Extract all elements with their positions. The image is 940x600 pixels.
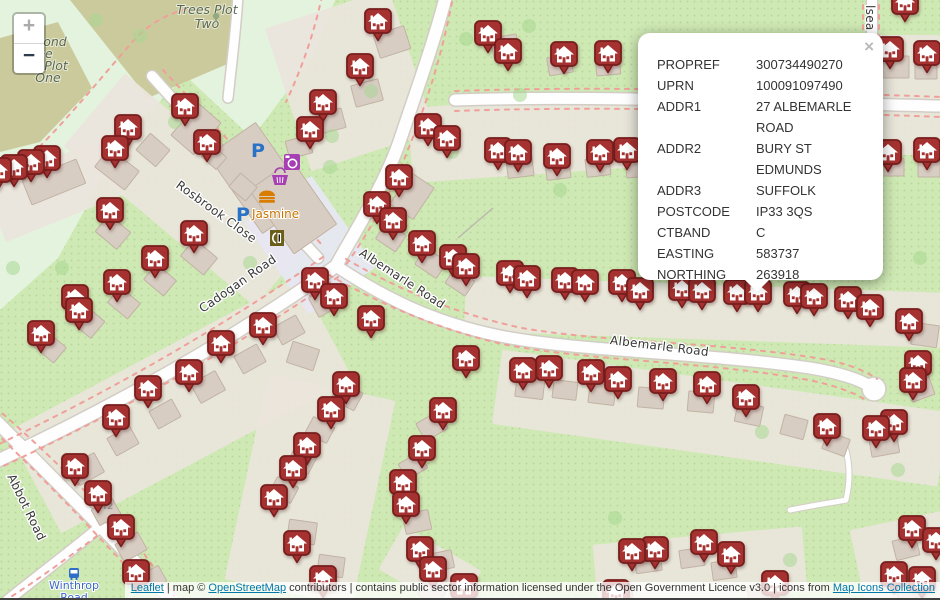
tree (89, 13, 103, 27)
popup-field-value: IP33 3QS (756, 201, 868, 222)
tree (522, 19, 536, 33)
popup-field-label: UPRN (657, 75, 756, 96)
tree (133, 29, 147, 43)
tree (364, 84, 378, 98)
popup-field-label: NORTHING (657, 264, 756, 285)
parking-icon: P (251, 140, 265, 162)
popup-row: ADDR2BURY ST EDMUNDS (657, 138, 877, 180)
popup-field-label: PROPREF (657, 54, 756, 75)
attribution-text: | map © (164, 582, 209, 594)
tree (6, 261, 20, 275)
attribution-link-openstreetmap[interactable]: OpenStreetMap (208, 582, 286, 594)
zoom-in-button[interactable]: + (14, 14, 44, 44)
tree (55, 261, 69, 275)
popup-row: POSTCODEIP33 3QS (657, 201, 877, 222)
attribution-link-leaflet[interactable]: Leaflet (131, 582, 164, 594)
popup-row: UPRN100091097490 (657, 75, 877, 96)
tree (323, 160, 337, 174)
tree (913, 251, 927, 265)
popup-field-label: ADDR1 (657, 96, 756, 138)
popup-field-value: SUFFOLK (756, 180, 868, 201)
doorway-icon (270, 230, 284, 246)
popup-field-value: 100091097490 (756, 75, 868, 96)
popup-field-value: BURY ST EDMUNDS (756, 138, 868, 180)
area-label: Trees Plot (176, 2, 238, 17)
popup-field-label: ADDR2 (657, 138, 756, 180)
popup-field-value: C (756, 222, 868, 243)
attribution-bar: Leaflet | map © OpenStreetMap contributo… (125, 582, 940, 598)
popup-field-value: 27 ALBEMARLE ROAD (756, 96, 868, 138)
laundry-icon (284, 154, 300, 170)
attribution-link-map-icons-collection[interactable]: Map Icons Collection (833, 582, 935, 594)
popup-row: EASTING583737 (657, 243, 877, 264)
tree (513, 88, 527, 102)
parking-icon: P (236, 204, 250, 226)
popup-row: CTBANDC (657, 222, 877, 243)
popup-field-label: CTBAND (657, 222, 756, 243)
popup-row: ADDR3SUFFOLK (657, 180, 877, 201)
popup-field-label: POSTCODE (657, 201, 756, 222)
popup-field-label: ADDR3 (657, 180, 756, 201)
restaurant-name-label: Jasmine (251, 207, 299, 221)
popup-content: PROPREF300734490270UPRN100091097490ADDR1… (638, 33, 883, 285)
tree (755, 425, 769, 439)
popup-field-value: 583737 (756, 243, 868, 264)
popup-tail (744, 279, 770, 292)
popup-field-value: 263918 (756, 264, 868, 285)
zoom-out-button[interactable]: − (14, 44, 44, 73)
popup-row: ADDR127 ALBEMARLE ROAD (657, 96, 877, 138)
tree (891, 463, 905, 477)
popup-close-icon[interactable]: × (864, 38, 874, 55)
tree (553, 183, 567, 197)
attribution-text: contributors | contains public sector in… (286, 582, 833, 594)
popup-field-label: EASTING (657, 243, 756, 264)
building (552, 380, 578, 401)
tree (459, 32, 473, 46)
tree (325, 129, 339, 143)
map-application: Trees PlotTwoondeePlotOne Rosbrook Close… (0, 0, 940, 600)
zoom-control: + − (12, 12, 46, 75)
popup-row: PROPREF300734490270 (657, 54, 877, 75)
popup-field-value: 300734490270 (756, 54, 868, 75)
property-popup: × PROPREF300734490270UPRN100091097490ADD… (638, 33, 883, 280)
tree (608, 511, 622, 525)
tree (783, 553, 797, 567)
